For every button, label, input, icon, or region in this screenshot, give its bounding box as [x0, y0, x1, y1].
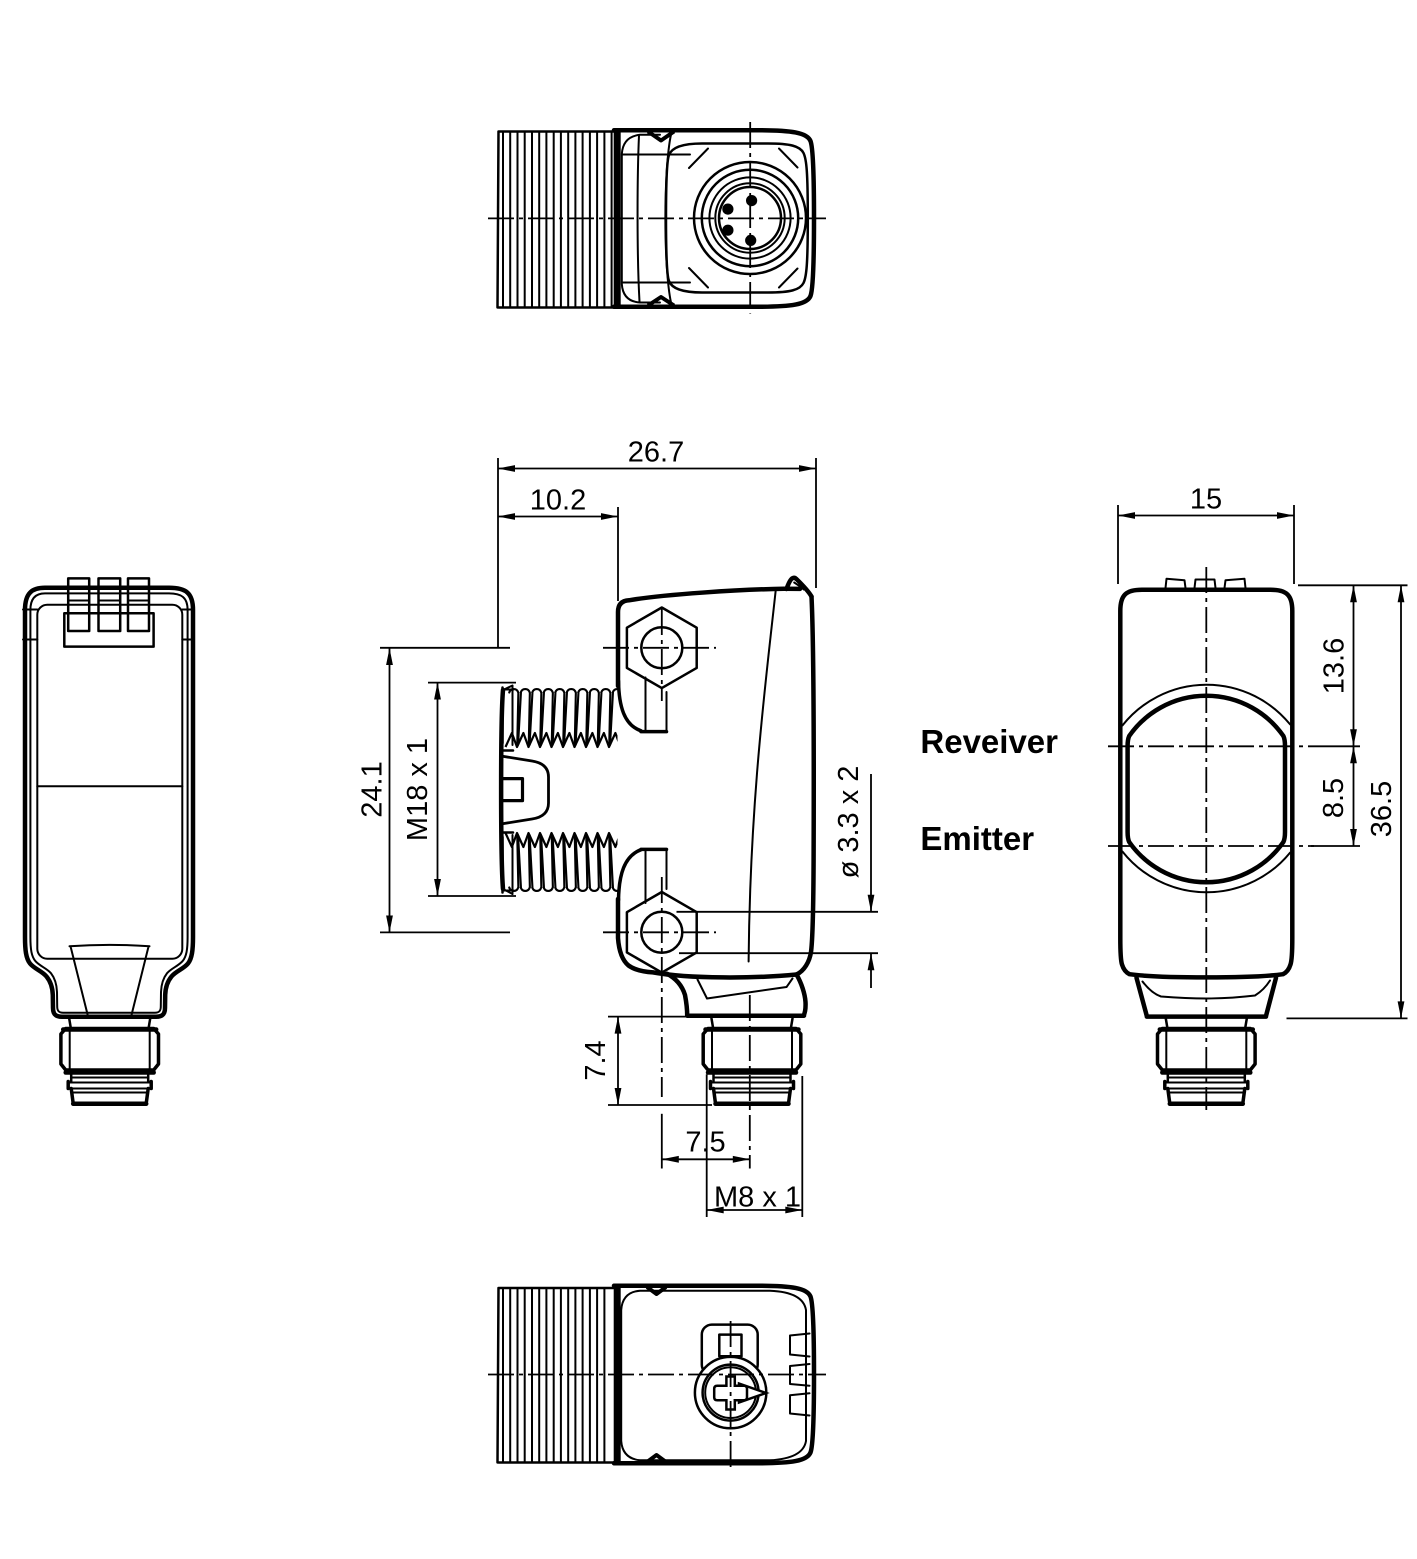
svg-text:13.6: 13.6 — [1319, 638, 1351, 694]
svg-text:26.7: 26.7 — [628, 437, 684, 469]
svg-text:7.5: 7.5 — [685, 1127, 725, 1159]
svg-text:M8 x 1: M8 x 1 — [714, 1182, 801, 1214]
svg-text:8.5: 8.5 — [1318, 778, 1350, 818]
svg-text:15: 15 — [1190, 484, 1222, 516]
svg-text:Reveiver: Reveiver — [920, 723, 1058, 760]
svg-text:M18 x 1: M18 x 1 — [402, 738, 434, 841]
svg-text:ø 3.3 x 2: ø 3.3 x 2 — [833, 766, 865, 879]
svg-text:7.4: 7.4 — [580, 1040, 612, 1080]
svg-text:36.5: 36.5 — [1366, 781, 1398, 837]
svg-text:Emitter: Emitter — [920, 820, 1034, 857]
svg-text:24.1: 24.1 — [357, 761, 389, 817]
svg-text:10.2: 10.2 — [530, 485, 586, 517]
